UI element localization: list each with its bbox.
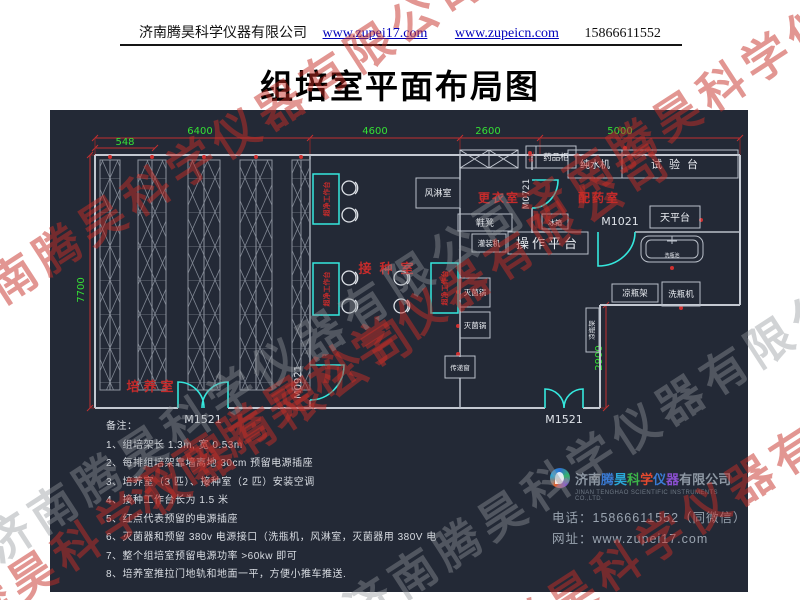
operation-platform-label: 操作平台: [516, 236, 580, 252]
header: 济南腾昊科学仪器有限公司 www.zupei17.com www.zupeicn…: [0, 22, 800, 42]
wardrobe-label: 衣柜: [527, 151, 535, 163]
floor-plan-panel: 6400 4600 2600 5000 548 7700 2900: [50, 110, 748, 592]
dim-2600: 2600: [475, 126, 500, 137]
clean-bench-label: 超净工作台: [322, 272, 331, 307]
room-label-inoculation: 接种室: [358, 261, 421, 277]
note-item: 6、灭菌器和预留 380v 电源接口（洗瓶机，风淋室，灭菌器用 380V 电: [106, 529, 437, 547]
medicine-cabinet-label: 药品柜: [543, 152, 569, 163]
stools: [342, 181, 410, 313]
door-label-m0721: M0721: [522, 179, 532, 210]
door-m1021: [598, 232, 635, 266]
door-label-m1521: M1521: [545, 413, 583, 426]
footer-contact: 济南腾昊科学仪器有限公司 JINAN TENGHAO SCIENTIFIC IN…: [550, 468, 746, 550]
footer-company-en: JINAN TENGHAO SCIENTIFIC INSTRUMENTS CO.…: [575, 490, 746, 502]
filling-machine-label: 灌装机: [478, 238, 501, 248]
dim-6400: 6400: [187, 126, 212, 137]
clean-bench-label: 超净工作台: [322, 182, 331, 217]
note-item: 2、每排组培架靠墙离地 30cm 预留电源插座: [106, 455, 437, 473]
company-logo-icon: [550, 468, 570, 488]
bottle-sink-label: 洗瓶池: [664, 252, 679, 259]
door-label-m0921: M0921: [293, 365, 304, 399]
hatched-wall: [460, 150, 518, 168]
note-item: 3、培养室（3 匹）、接种室（2 匹）安装空调: [106, 474, 437, 492]
air-shower-label: 风淋室: [424, 187, 451, 199]
header-company: 济南腾昊科学仪器有限公司: [139, 26, 307, 41]
header-link-zupei17[interactable]: www.zupei17.com: [323, 26, 428, 41]
room-label-dispensing: 配药室: [578, 190, 620, 205]
door-label-m1021: M1021: [601, 215, 639, 228]
rack-column: [138, 160, 166, 390]
fridge-label: 冰箱: [548, 218, 562, 227]
page: 济南腾昊科学仪器有限公司 www.zupei17.com www.zupeicn…: [0, 0, 800, 600]
footer-company-prefix: 济南: [575, 472, 601, 487]
equipment: [416, 146, 738, 378]
pass-window-label: 传递窗: [450, 363, 470, 372]
room-label-cultivation: 培养室: [126, 379, 177, 395]
bottle-rack-vertical-label: 凉瓶架: [587, 320, 596, 340]
header-link-zupeicn[interactable]: www.zupeicn.com: [455, 26, 559, 41]
dim-548: 548: [115, 137, 134, 148]
note-item: 5、红点代表预留的电源插座: [106, 511, 437, 529]
footer-phone: 电话：15866611552（同微信）: [552, 508, 746, 529]
header-divider: [120, 44, 682, 46]
shoe-bench-label: 鞋凳: [476, 217, 494, 229]
rack-column: [188, 160, 220, 390]
notes-block: 备注： 1、组培架长 1.3m, 宽 0.53m 2、每排组培架靠墙离地 30c…: [106, 418, 437, 585]
door-m0921: [310, 365, 344, 400]
water-purifier-label: 纯水机: [580, 158, 610, 171]
room-label-changing: 更衣室: [478, 190, 520, 205]
note-item: 8、培养室推拉门地轨和地面一平，方便小推车推送.: [106, 566, 437, 584]
page-title: 组培室平面布局图: [0, 60, 800, 108]
note-item: 1、组培架长 1.3m, 宽 0.53m: [106, 437, 437, 455]
rack-column: [292, 160, 310, 390]
note-item: 7、整个组培室预留电源功率 >60kw 即可: [106, 548, 437, 566]
clean-bench-label: 超净工作台: [440, 271, 449, 306]
dim-7700: 7700: [76, 277, 87, 302]
footer-website: 网址：www.zupei17.com: [552, 529, 746, 550]
sterilizer-label-1: 灭菌锅: [464, 287, 487, 297]
dim-5000: 5000: [607, 126, 632, 137]
note-item: 4、接种工作台长为 1.5 米: [106, 492, 437, 510]
bottle-washer-label: 洗瓶机: [668, 289, 694, 300]
door-m1521-right: [545, 389, 583, 408]
header-phone: 15866611552: [584, 26, 660, 41]
test-bench-label: 试验台: [651, 157, 705, 171]
rack-column: [240, 160, 272, 390]
notes-title: 备注：: [106, 418, 437, 436]
rack-column: [100, 160, 120, 390]
footer-company-name: 济南腾昊科学仪器有限公司: [575, 469, 731, 488]
footer-company-suffix: 有限公司: [679, 472, 731, 487]
bottle-rack-label: 凉瓶架: [622, 288, 648, 299]
culture-racks: [100, 160, 310, 390]
footer-company-colored: 腾昊科学仪器: [601, 472, 679, 487]
balance-table-label: 天平台: [660, 211, 690, 224]
door-m0721: [532, 180, 558, 208]
sterilizer-label-2: 灭菌锅: [464, 320, 487, 330]
dim-4600: 4600: [362, 126, 387, 137]
